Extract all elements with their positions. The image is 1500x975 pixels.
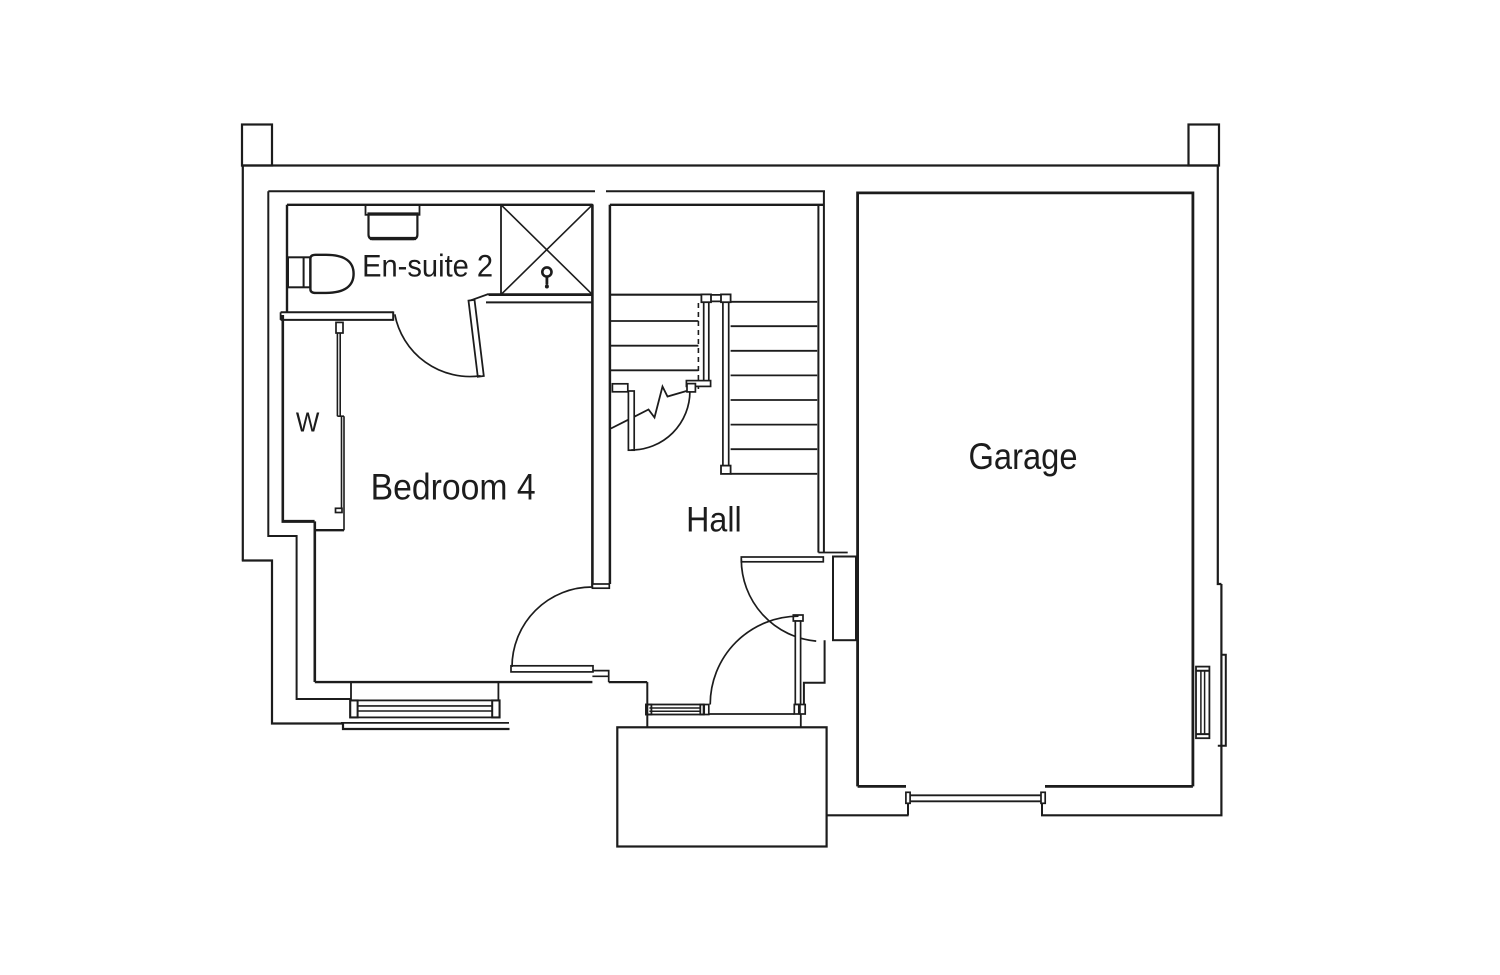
svg-text:Garage: Garage bbox=[969, 436, 1078, 477]
svg-text:En-suite 2: En-suite 2 bbox=[362, 248, 493, 284]
svg-text:Bedroom 4: Bedroom 4 bbox=[371, 465, 536, 507]
svg-text:Hall: Hall bbox=[686, 500, 742, 539]
svg-text:W: W bbox=[296, 406, 320, 437]
